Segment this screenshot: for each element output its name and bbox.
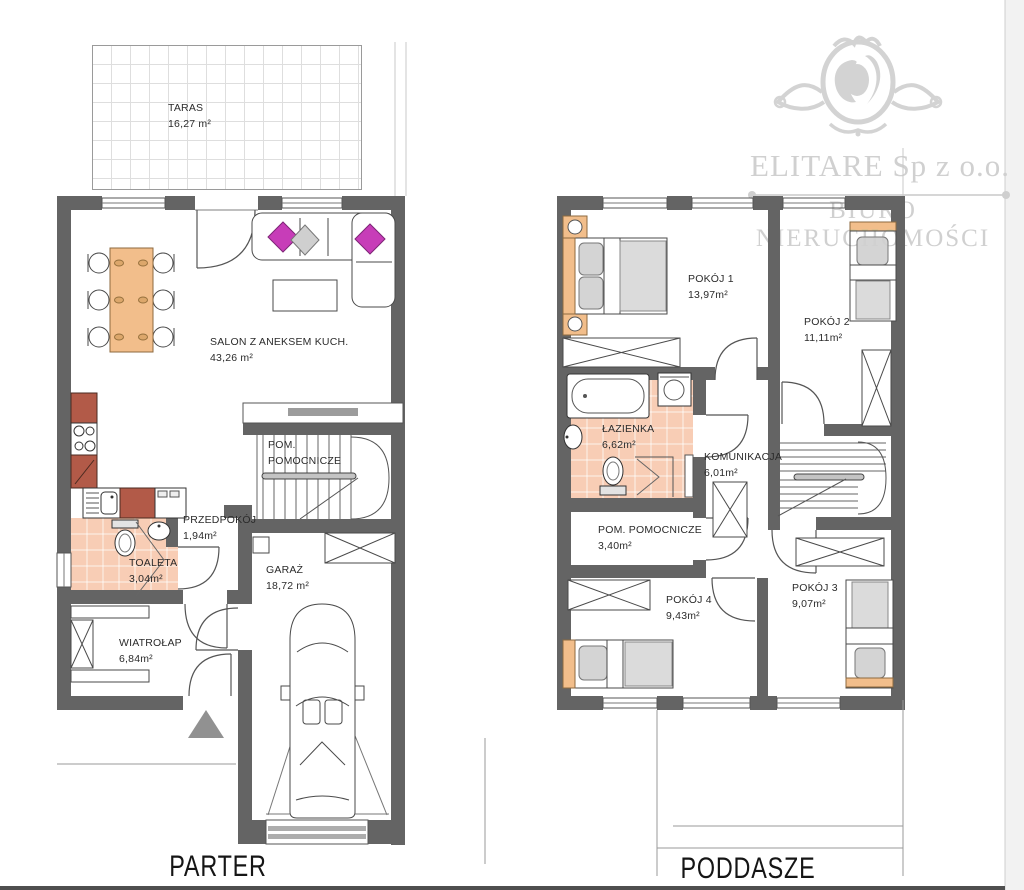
- room-area: 3,40m²: [598, 539, 702, 555]
- room-name: GARAŻ: [266, 563, 309, 579]
- dining-set: [88, 248, 174, 352]
- page-right-edge: [1005, 0, 1024, 890]
- room-label-pokoj4: POKÓJ 4 9,43m²: [666, 593, 712, 625]
- room-area: 11,11m²: [804, 331, 850, 347]
- coffee-table: [273, 280, 337, 311]
- bed-pokoj2: [850, 222, 896, 321]
- room-area: 3,04m²: [129, 572, 177, 588]
- room-label-komunikacja: KOMUNIKACJA 6,01m²: [704, 450, 782, 482]
- kitchen-unit: [71, 393, 186, 518]
- room-area: 1,94m²: [183, 529, 256, 545]
- garage-storage: [253, 533, 395, 563]
- room-name: PRZEDPOKÓJ: [183, 513, 256, 529]
- room-label-pokoj3: POKÓJ 3 9,07m²: [792, 581, 838, 613]
- wardrobe-komunikacja: [713, 482, 747, 537]
- room-label-wiatrolap: WIATROŁAP 6,84m²: [119, 636, 182, 668]
- room-label-pokoj1: POKÓJ 1 13,97m²: [688, 272, 734, 304]
- sofa-set: [252, 213, 395, 311]
- room-label-garaz: GARAŻ 18,72 m²: [266, 563, 309, 595]
- page-bottom-edge: [0, 886, 1005, 890]
- bed-pokoj1: [563, 216, 667, 335]
- room-name: POKÓJ 3: [792, 581, 838, 597]
- room-name: POKÓJ 1: [688, 272, 734, 288]
- bed-pokoj3: [846, 580, 893, 688]
- room-area: 16,27 m²: [168, 117, 211, 133]
- room-area: 6,01m²: [704, 466, 782, 482]
- wardrobe-pokoj4: [568, 580, 650, 610]
- wardrobe-pokoj3: [796, 538, 884, 566]
- room-name: POKÓJ 2: [804, 315, 850, 331]
- room-name: TOALETA: [129, 556, 177, 572]
- room-name: SALON Z ANEKSEM KUCH.: [210, 335, 348, 351]
- staircase-poddasze: [778, 442, 886, 516]
- room-label-przedpokoj: PRZEDPOKÓJ 1,94m²: [183, 513, 256, 545]
- floor-title-parter: PARTER: [163, 850, 272, 884]
- doors-parter: [178, 196, 258, 696]
- floor-title-poddasze: PODDASZE: [681, 852, 798, 886]
- room-name: ŁAZIENKA: [602, 422, 654, 438]
- room-name: POM. POMOCNICZE: [268, 438, 334, 470]
- wardrobe-pokoj2: [862, 350, 891, 426]
- room-name: TARAS: [168, 101, 211, 117]
- room-label-salon: SALON Z ANEKSEM KUCH. 43,26 m²: [210, 335, 348, 367]
- floorplan-drawing: [0, 0, 1024, 890]
- entrance-arrow: [188, 710, 224, 738]
- garage-door: [266, 820, 368, 844]
- bed-pokoj4: [563, 640, 673, 688]
- floorplan-page: TARAS 16,27 m² SALON Z ANEKSEM KUCH. 43,…: [0, 0, 1024, 890]
- room-label-pokoj2: POKÓJ 2 11,11m²: [804, 315, 850, 347]
- room-area: 9,43m²: [666, 609, 712, 625]
- room-name: WIATROŁAP: [119, 636, 182, 652]
- room-area: 43,26 m²: [210, 351, 348, 367]
- room-area: 13,97m²: [688, 288, 734, 304]
- garage-car: [266, 604, 389, 818]
- room-area: 18,72 m²: [266, 579, 309, 595]
- room-name: POM. POMOCNICZE: [598, 523, 702, 539]
- wardrobe-pokoj1: [563, 338, 680, 367]
- room-label-pom-pomocnicze-poddasze: POM. POMOCNICZE 3,40m²: [598, 523, 702, 555]
- room-name: KOMUNIKACJA: [704, 450, 782, 466]
- room-area: 6,84m²: [119, 652, 182, 668]
- room-area: 6,62m²: [602, 438, 654, 454]
- room-area: 9,07m²: [792, 597, 838, 613]
- room-label-taras: TARAS 16,27 m²: [168, 101, 211, 133]
- room-name: POKÓJ 4: [666, 593, 712, 609]
- room-label-pom-pomocnicze-parter: POM. POMOCNICZE: [268, 438, 334, 470]
- room-label-lazienka: ŁAZIENKA 6,62m²: [602, 422, 654, 454]
- room-label-toaleta: TOALETA 3,04m²: [129, 556, 177, 588]
